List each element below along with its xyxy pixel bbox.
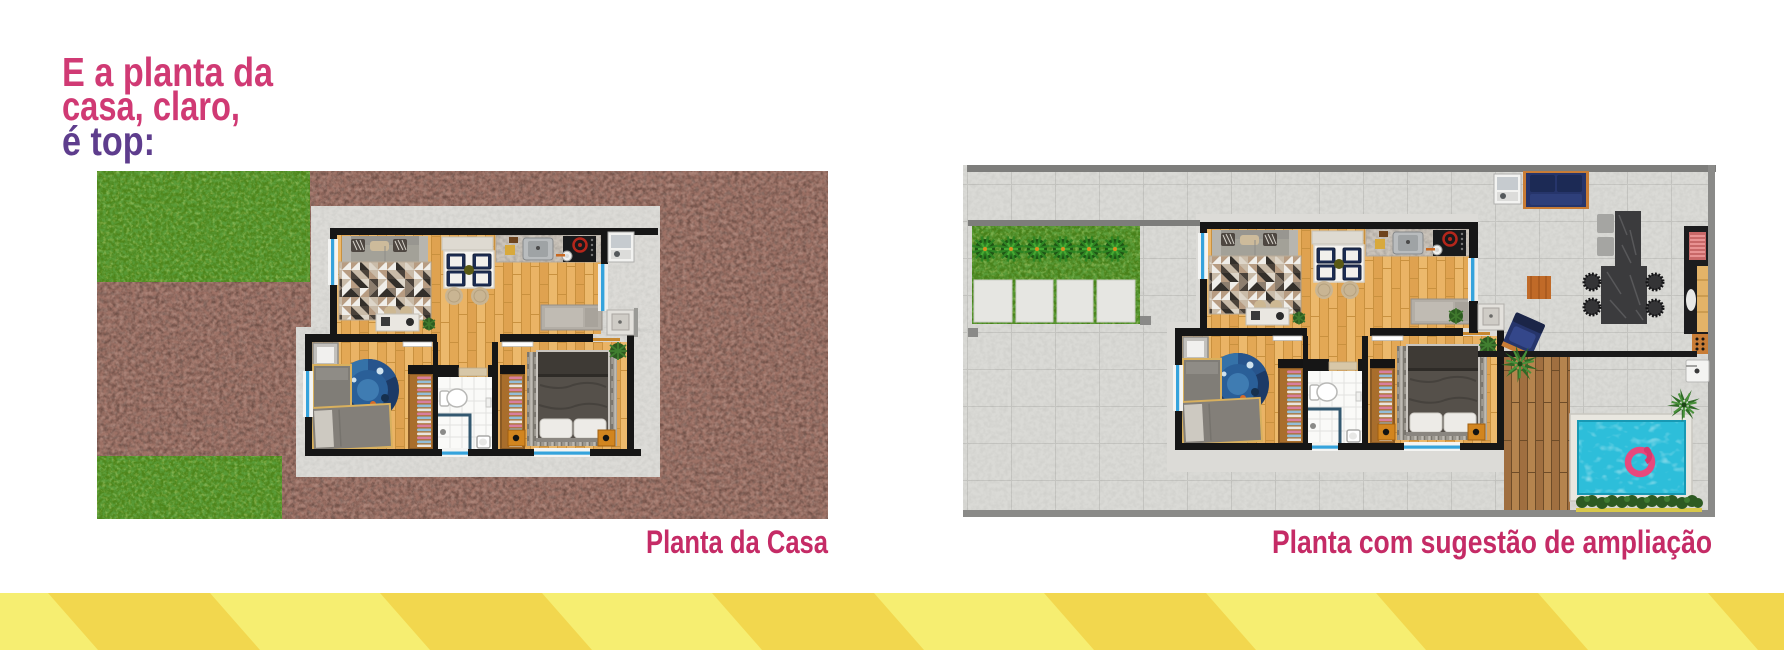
svg-text:Planta da Casa: Planta da Casa	[646, 524, 828, 560]
svg-text:é top:: é top:	[62, 118, 155, 164]
svg-text:Planta com sugestão de ampliaç: Planta com sugestão de ampliação	[1272, 524, 1712, 560]
